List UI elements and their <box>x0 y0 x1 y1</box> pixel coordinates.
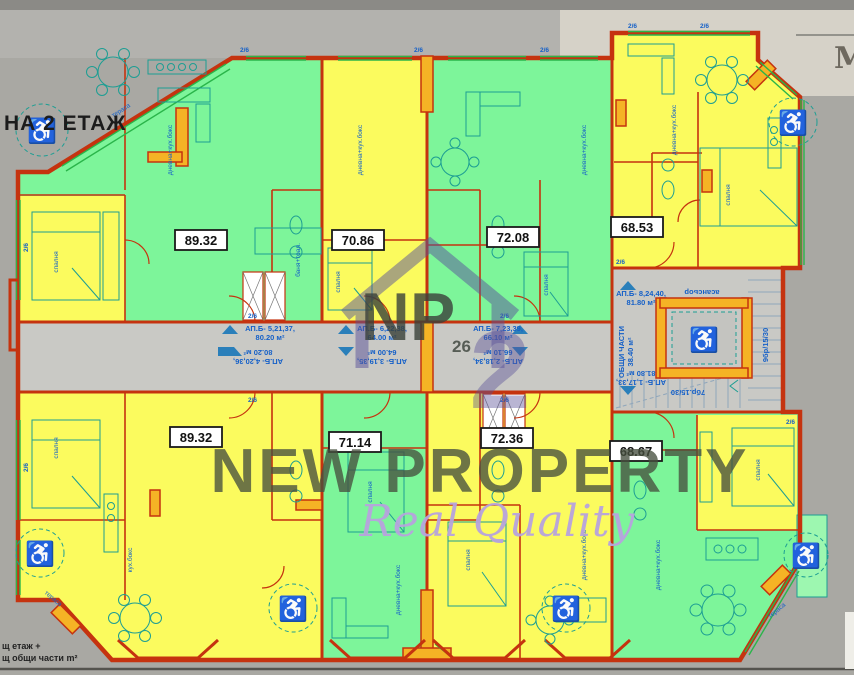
svg-text:спалня: спалня <box>725 184 732 206</box>
svg-text:спалня: спалня <box>755 459 762 481</box>
svg-text:АП.Б- 1,17,33,: АП.Б- 1,17,33, <box>616 378 666 387</box>
stairs-left-label: 7бр.15/30 <box>671 388 705 397</box>
svg-text:2/6: 2/6 <box>240 47 249 54</box>
svg-text:АП.Б- 4,20,36,: АП.Б- 4,20,36, <box>233 357 283 366</box>
svg-text:дневна+кух.бокс: дневна+кух.бокс <box>356 124 364 175</box>
area-label-top-mid-left: 70.86 <box>332 230 384 250</box>
area-label-top-mid-right: 72.08 <box>487 227 539 247</box>
svg-text:2/6: 2/6 <box>616 259 625 266</box>
svg-text:2/6: 2/6 <box>786 419 795 426</box>
svg-text:дневна+кух.бокс: дневна+кух.бокс <box>394 564 402 615</box>
svg-text:спалня: спалня <box>465 549 472 571</box>
svg-text:2/6: 2/6 <box>23 463 30 472</box>
svg-text:2/6: 2/6 <box>23 243 30 252</box>
svg-text:70.86: 70.86 <box>342 233 375 248</box>
svg-text:2/6: 2/6 <box>700 23 709 30</box>
wheelchair-icon: ♿ <box>278 595 308 623</box>
wheelchair-icon: ♿ <box>25 540 55 568</box>
watermark-big-glyph: 2 <box>469 309 530 432</box>
wheelchair-icon: ♿ <box>791 542 821 570</box>
svg-text:спалня: спалня <box>53 437 60 459</box>
stairs-right-label: 9бр/15/30 <box>761 328 770 362</box>
white-corner-patch <box>845 612 854 669</box>
elevator-label: асансьор <box>684 288 719 297</box>
floor-title: НА 2 ЕТАЖ <box>4 112 126 135</box>
svg-text:89.32: 89.32 <box>180 430 213 445</box>
svg-text:2/6: 2/6 <box>248 397 257 404</box>
svg-text:спалня: спалня <box>335 271 342 293</box>
wheelchair-icon: ♿ <box>551 595 581 623</box>
svg-text:спалня: спалня <box>543 274 550 296</box>
floorplan-canvas: ♿ <box>0 0 854 675</box>
svg-text:АП.Б- 5,21,37,: АП.Б- 5,21,37, <box>245 324 295 333</box>
svg-text:68.53: 68.53 <box>621 220 654 235</box>
svg-text:дневна+кух.бокс: дневна+кух.бокс <box>166 124 174 175</box>
watermark-tagline: Real Quality <box>359 496 636 547</box>
legend-line-1: щ етаж + <box>2 641 41 651</box>
svg-text:38.40 м²: 38.40 м² <box>626 337 635 366</box>
svg-text:дневна+кух.бокс: дневна+кух.бокс <box>654 539 662 590</box>
area-label-top-left: 89.32 <box>175 230 227 250</box>
room-accent-yellow-left <box>20 196 125 322</box>
svg-text:2/6: 2/6 <box>248 313 257 320</box>
svg-text:81.80 м²: 81.80 м² <box>627 298 656 307</box>
svg-text:80.20 м²: 80.20 м² <box>243 348 272 357</box>
svg-text:АП.Б- 8,24,40,: АП.Б- 8,24,40, <box>616 289 666 298</box>
wheelchair-icon: ♿ <box>689 326 719 354</box>
svg-text:кух.бокс: кух.бокс <box>126 547 134 572</box>
legend-line-2: щ общи части m² <box>2 653 77 663</box>
svg-text:2/6: 2/6 <box>414 47 423 54</box>
floorplan-screenshot: ♿ <box>0 0 854 675</box>
svg-text:89.32: 89.32 <box>185 233 218 248</box>
svg-text:баня+тоал.: баня+тоал. <box>294 243 302 277</box>
svg-text:ОБЩИ ЧАСТИ: ОБЩИ ЧАСТИ <box>617 326 626 378</box>
corner-letter: M <box>834 41 854 76</box>
area-label-top-right: 68.53 <box>611 217 663 237</box>
svg-text:80.20 м²: 80.20 м² <box>256 333 285 342</box>
wheelchair-icon: ♿ <box>778 109 808 137</box>
svg-text:спалня: спалня <box>53 251 60 273</box>
svg-text:81.80 м²: 81.80 м² <box>626 369 655 378</box>
svg-text:2/6: 2/6 <box>628 23 637 30</box>
svg-text:дневна+кух.бокс: дневна+кух.бокс <box>670 104 678 155</box>
svg-text:дневна+кух.бокс: дневна+кух.бокс <box>580 124 588 175</box>
svg-text:72.08: 72.08 <box>497 230 530 245</box>
watermark-number: 26 <box>452 337 471 356</box>
watermark-initials: NP <box>361 279 455 355</box>
svg-text:2/6: 2/6 <box>540 47 549 54</box>
